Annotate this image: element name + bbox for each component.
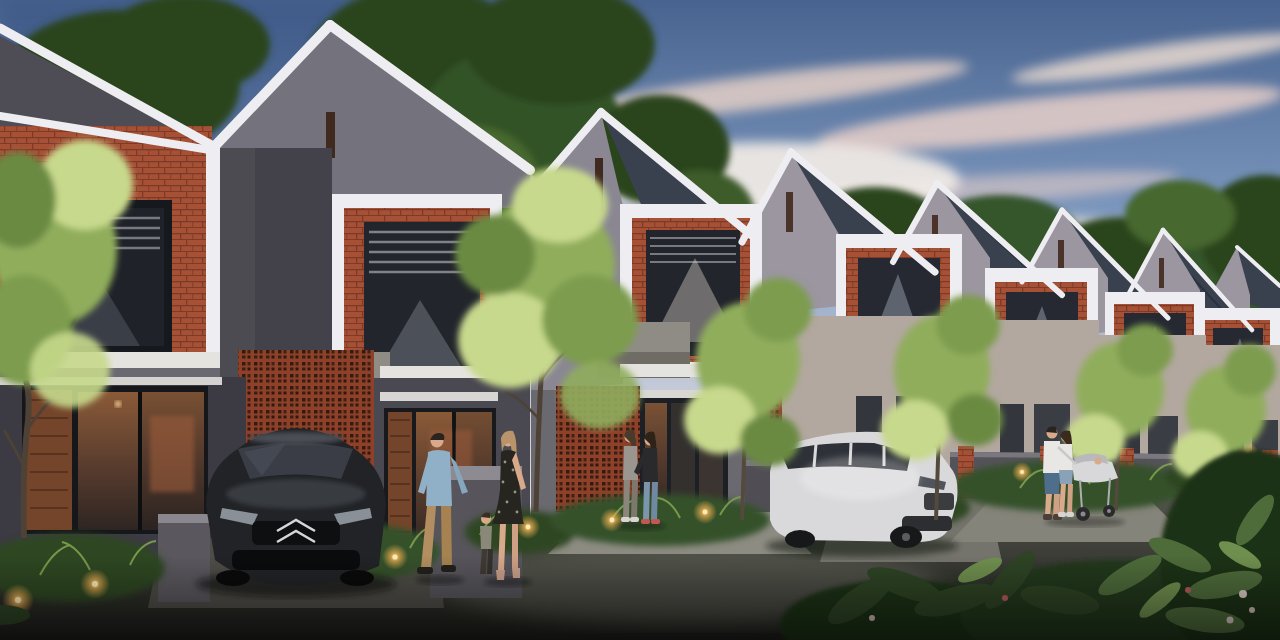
house-1-entry	[22, 386, 208, 534]
bottom-vignette	[0, 555, 1280, 640]
render-canvas	[0, 0, 1280, 640]
architectural-render	[0, 0, 1280, 640]
